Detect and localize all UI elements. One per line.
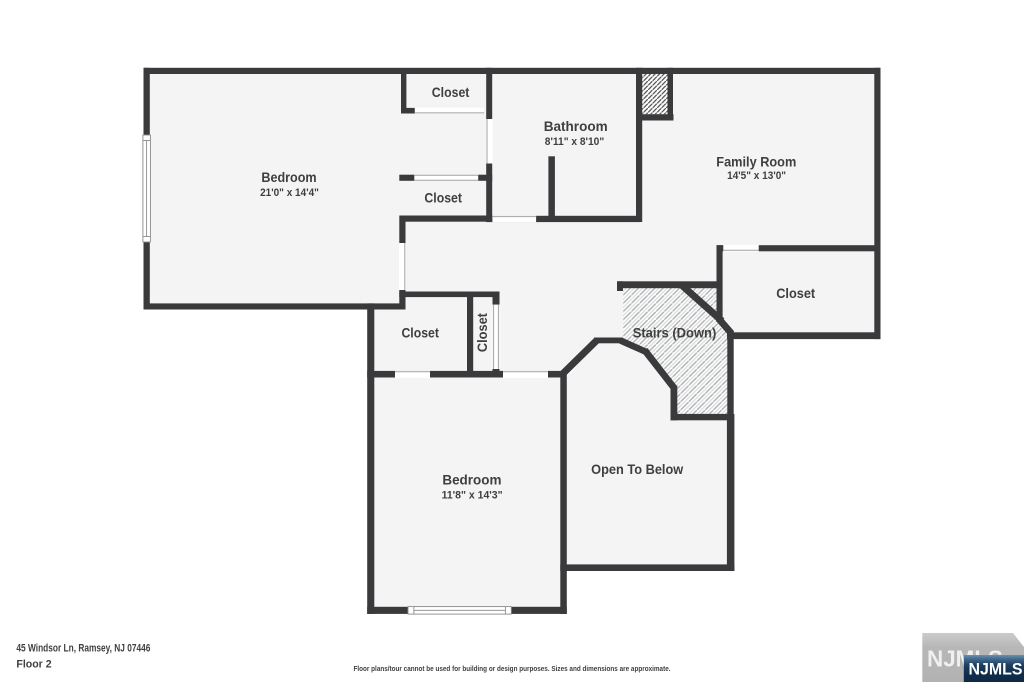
- svg-text:Bedroom: Bedroom: [261, 170, 316, 185]
- svg-text:Stairs (Down): Stairs (Down): [633, 325, 717, 340]
- svg-text:Closet: Closet: [401, 326, 439, 341]
- svg-text:Open To Below: Open To Below: [591, 462, 683, 477]
- svg-text:Family Room: Family Room: [716, 155, 796, 170]
- svg-text:Closet: Closet: [776, 286, 815, 301]
- svg-text:Bathroom: Bathroom: [544, 119, 608, 134]
- svg-text:45 Windsor Ln, Ramsey, NJ 0744: 45 Windsor Ln, Ramsey, NJ 07446: [16, 643, 150, 655]
- svg-text:NJMLS: NJMLS: [969, 659, 1023, 678]
- svg-text:8'11" x 8'10": 8'11" x 8'10": [545, 136, 604, 148]
- svg-text:Floor plans/tour cannot be use: Floor plans/tour cannot be used for buil…: [354, 665, 671, 673]
- svg-text:Closet: Closet: [475, 313, 490, 352]
- svg-text:14'5" x 13'0": 14'5" x 13'0": [727, 170, 786, 182]
- svg-text:Bedroom: Bedroom: [442, 473, 501, 488]
- svg-text:Floor 2: Floor 2: [16, 658, 51, 670]
- svg-text:21'0" x 14'4": 21'0" x 14'4": [260, 187, 319, 199]
- svg-text:11'8" x 14'3": 11'8" x 14'3": [442, 489, 503, 501]
- svg-text:Closet: Closet: [432, 85, 470, 100]
- svg-text:Closet: Closet: [424, 191, 462, 206]
